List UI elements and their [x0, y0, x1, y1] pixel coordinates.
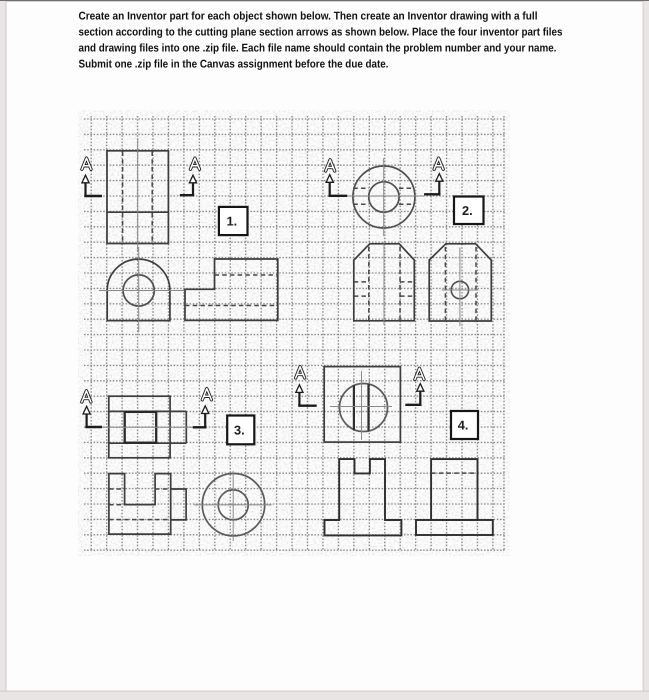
svg-text:2.: 2. — [462, 203, 473, 218]
svg-text:1.: 1. — [226, 214, 237, 229]
svg-text:and drawing files into one .zi: and drawing files into one .zip file. Ea… — [79, 43, 557, 55]
svg-text:Create an Inventor part for ea: Create an Inventor part for each object … — [79, 11, 538, 23]
svg-text:4.: 4. — [458, 418, 469, 433]
svg-text:3.: 3. — [234, 422, 245, 437]
svg-text:section according to the cutti: section according to the cutting plane s… — [79, 27, 563, 39]
svg-text:Submit one .zip file in the Ca: Submit one .zip file in the Canvas assig… — [79, 59, 389, 71]
